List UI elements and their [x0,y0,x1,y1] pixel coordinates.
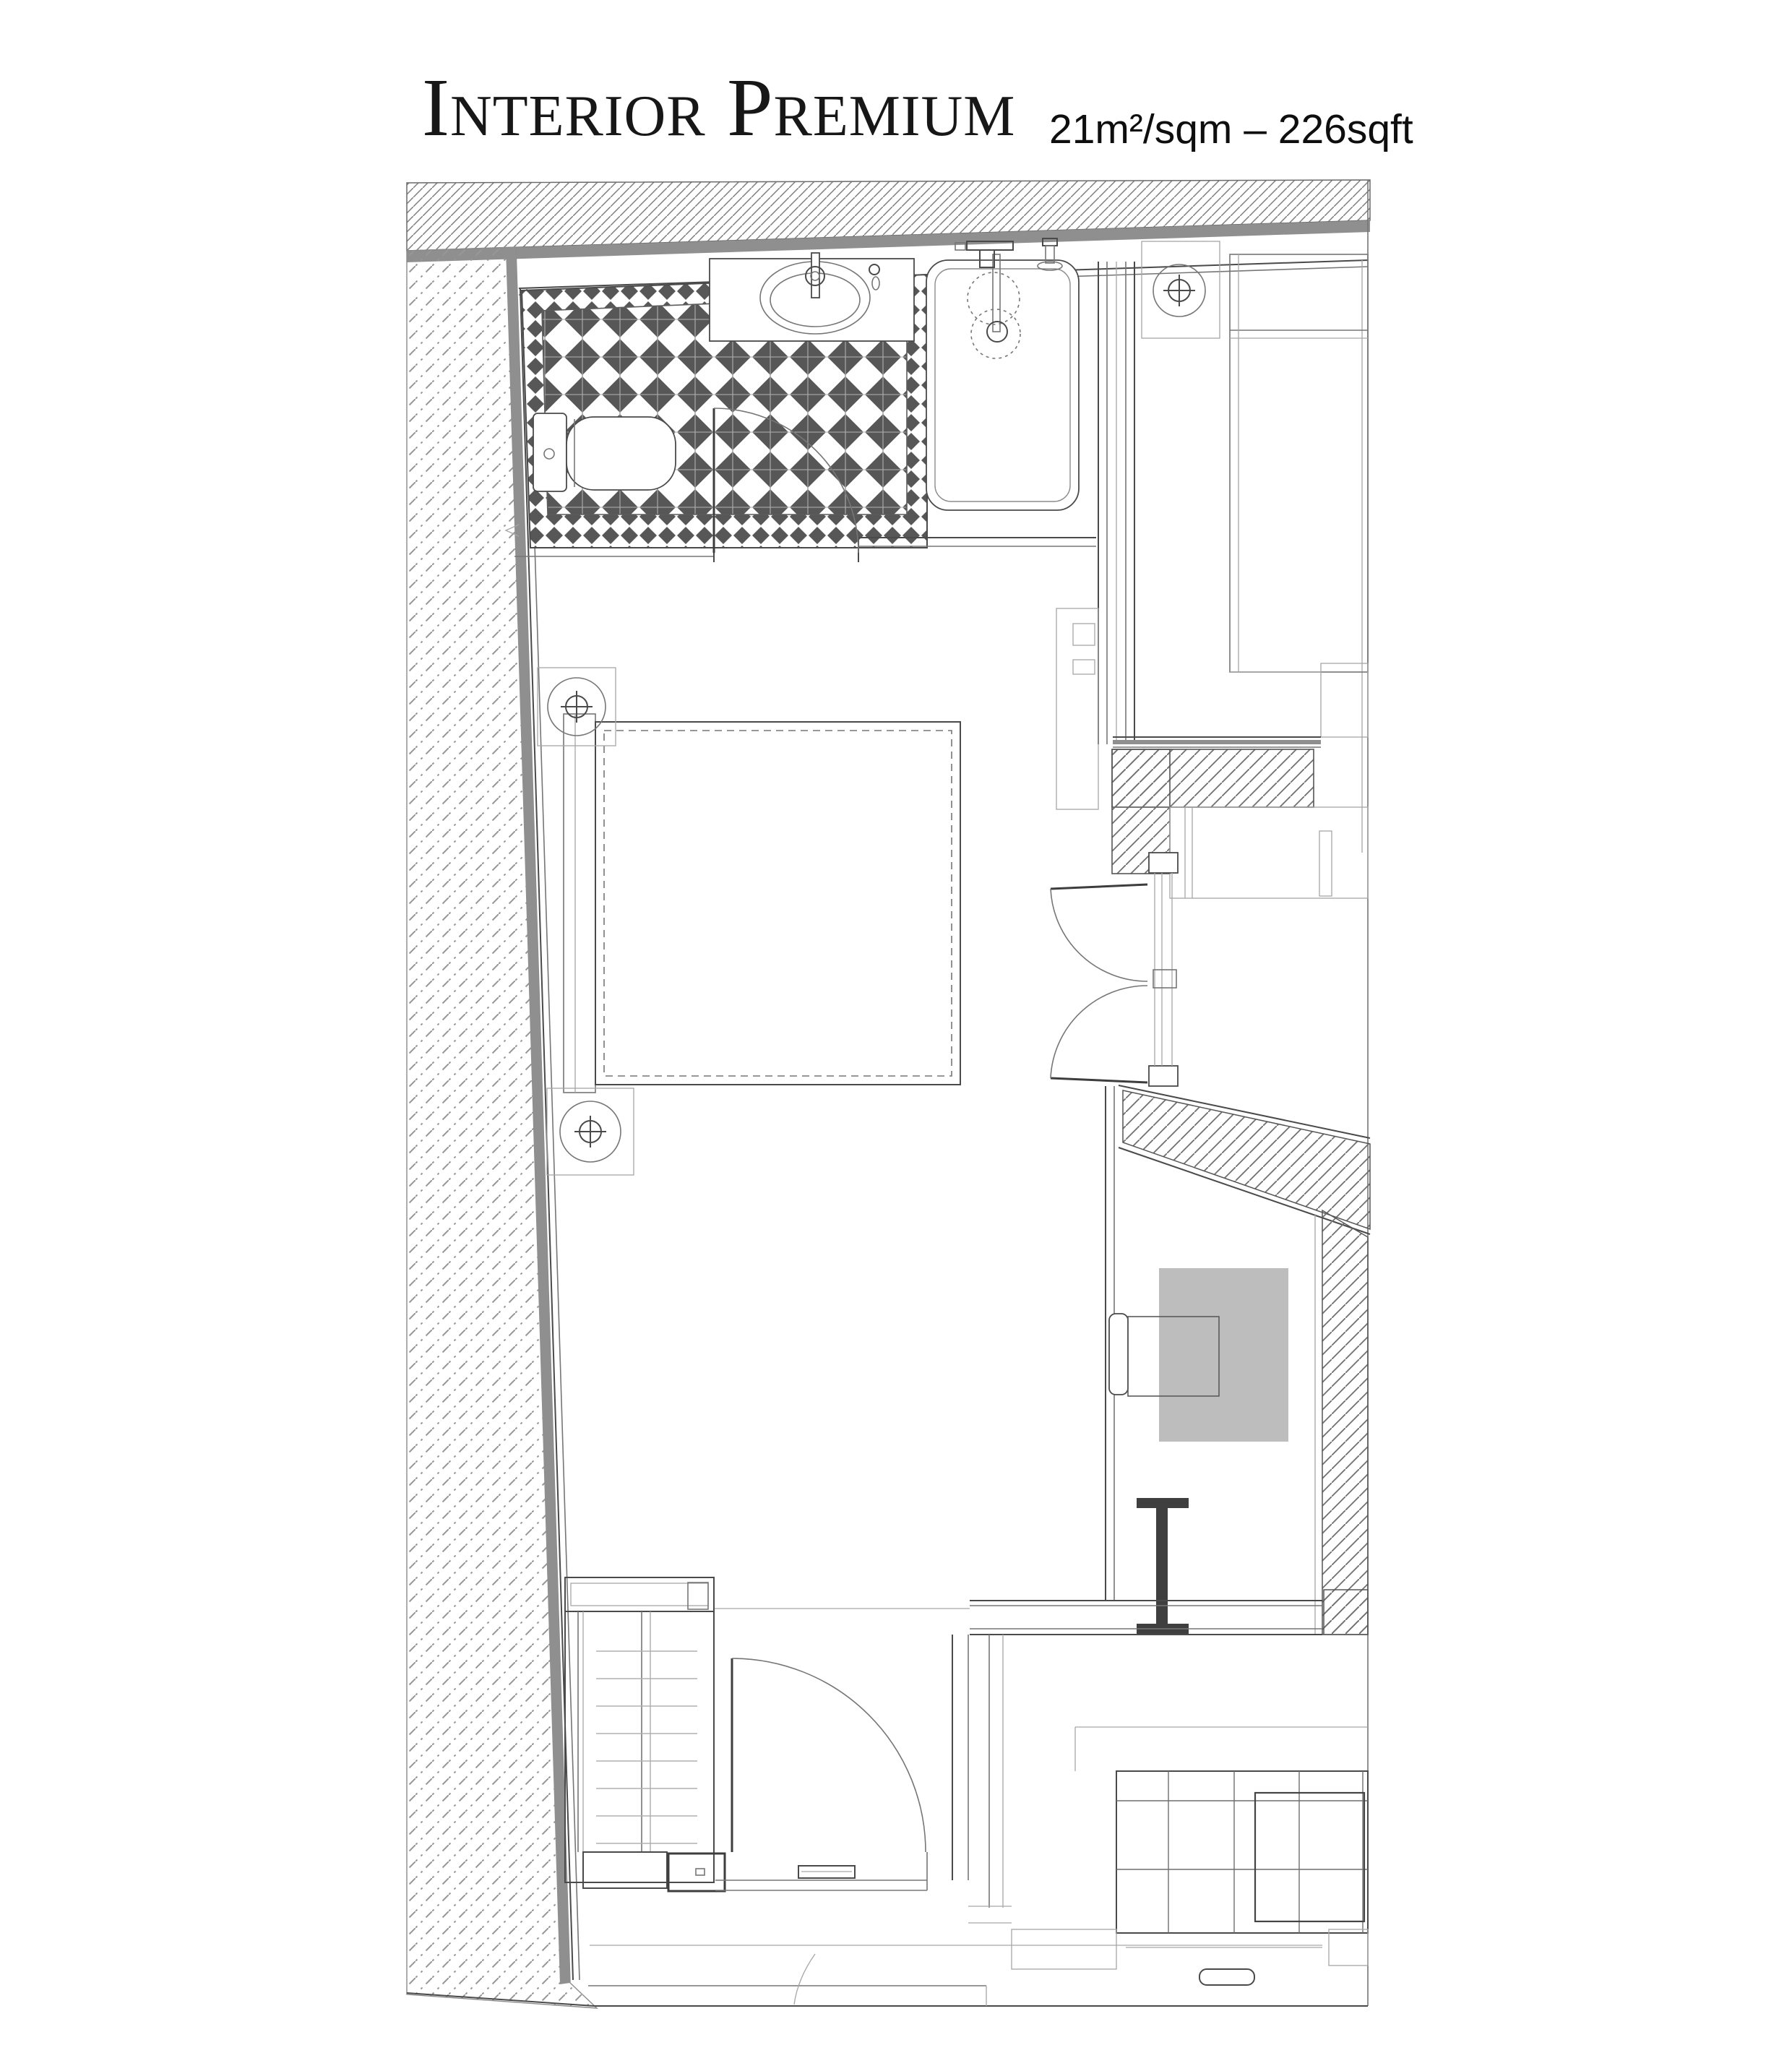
doorframe-jamb-bottom [1149,1066,1178,1086]
headboard [564,714,595,1093]
kitchen-grid-lines [1116,1771,1368,1933]
floorplan-canvas [0,0,1792,2058]
neighbor-bed [1230,254,1368,672]
steel-web [1156,1508,1168,1624]
wall-cabinet [1056,608,1098,809]
vanity [710,253,914,341]
divider-wall [1098,262,1134,744]
wall-cabinet-notch1 [1073,624,1095,645]
double-bed [595,722,960,1085]
door-swing-bottom [1051,986,1147,1078]
stairs-bottom-block2 [668,1854,725,1891]
lower-door-arc-fragment [794,1954,815,2005]
door-swing-top [1051,889,1147,981]
kitchen-drawer-right [1329,1929,1368,1966]
kitchen-unit [968,1635,1368,1985]
kitchen-handle [1199,1969,1254,1985]
kitchen-grid-overlay [1255,1793,1364,1921]
stairs-treads [596,1651,697,1843]
neighbor-bench [1321,663,1368,737]
ceiling-light-2 [547,1088,634,1175]
ceiling-light-neighbor [1142,241,1220,338]
closet-shelf [1319,831,1332,896]
door-leaf-top [1051,884,1147,889]
toilet-bowl [567,417,676,490]
bed-mattress-dashed [604,731,952,1076]
toilet-tank [533,413,567,491]
doorframe-latch [1153,970,1176,988]
toilet [533,413,676,491]
wall-cabinet-notch2 [1073,660,1095,674]
faucet-stem [811,253,819,298]
bottom-wall [714,1590,1368,1890]
entry [715,1658,927,2005]
slant-wall-hatch [1123,1090,1370,1229]
stairs [565,1577,725,1891]
kitchen-grid [1116,1771,1368,1933]
right-wall-hatch [1322,1210,1368,1635]
stairs-outline [565,1577,714,1882]
doorframe-jamb-top [1149,853,1178,873]
neighbor-room [1142,241,1368,737]
wardrobe-doors [1051,853,1178,1086]
desk-area [1109,1268,1288,1634]
shower [926,238,1079,510]
main-bedroom [538,668,1114,1601]
entry-door-swing [732,1658,926,1852]
closet-zone [1056,608,1368,898]
desk [1159,1268,1288,1442]
bottom-right-hatch [1324,1590,1368,1635]
closet-niche [1170,807,1368,898]
bathroom [514,238,1096,562]
chair-back [1109,1314,1128,1395]
stairs-bottom-detail [696,1869,705,1875]
kitchen-drawer-left [1012,1929,1116,1969]
steel-flange-top [1137,1498,1189,1508]
shower-tray-inner [935,269,1070,501]
floorplan-page: Interior Premium 21m²/sqm – 226sqft [0,0,1792,2058]
steel-column [1137,1498,1189,1634]
door-leaf-bottom [1051,1078,1147,1082]
